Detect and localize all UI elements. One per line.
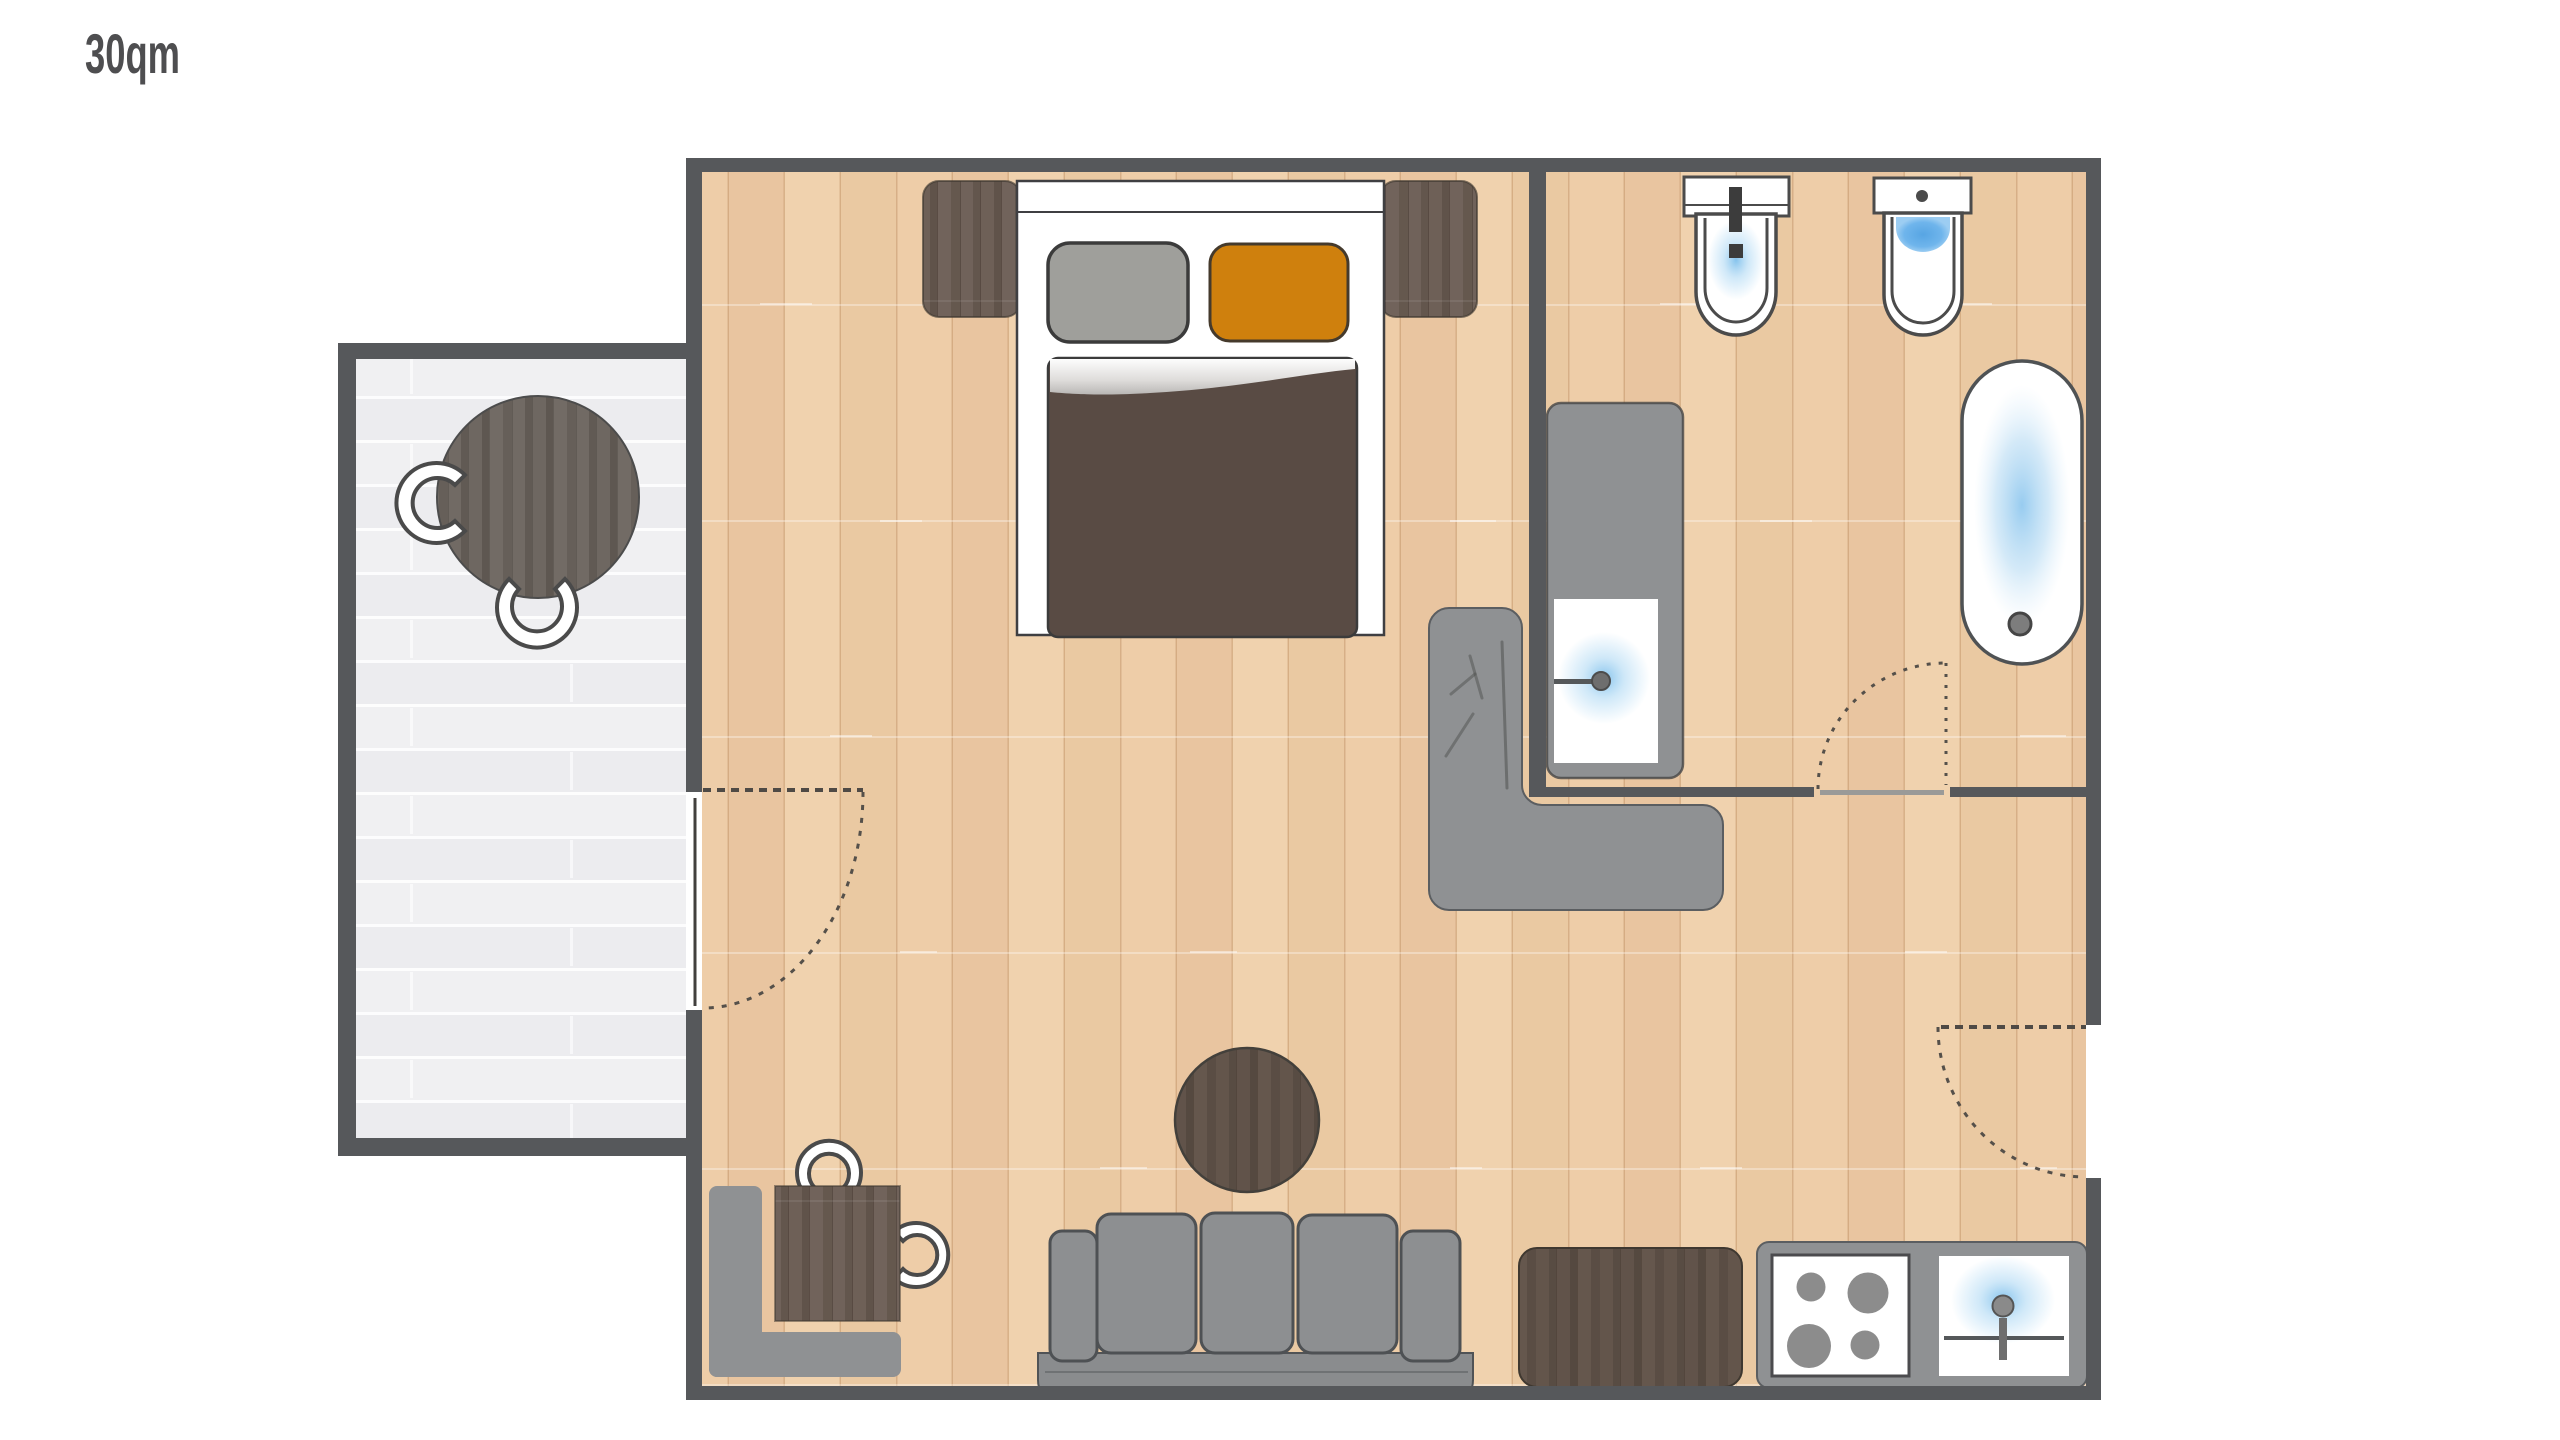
svg-text:30qm: 30qm — [85, 22, 180, 85]
